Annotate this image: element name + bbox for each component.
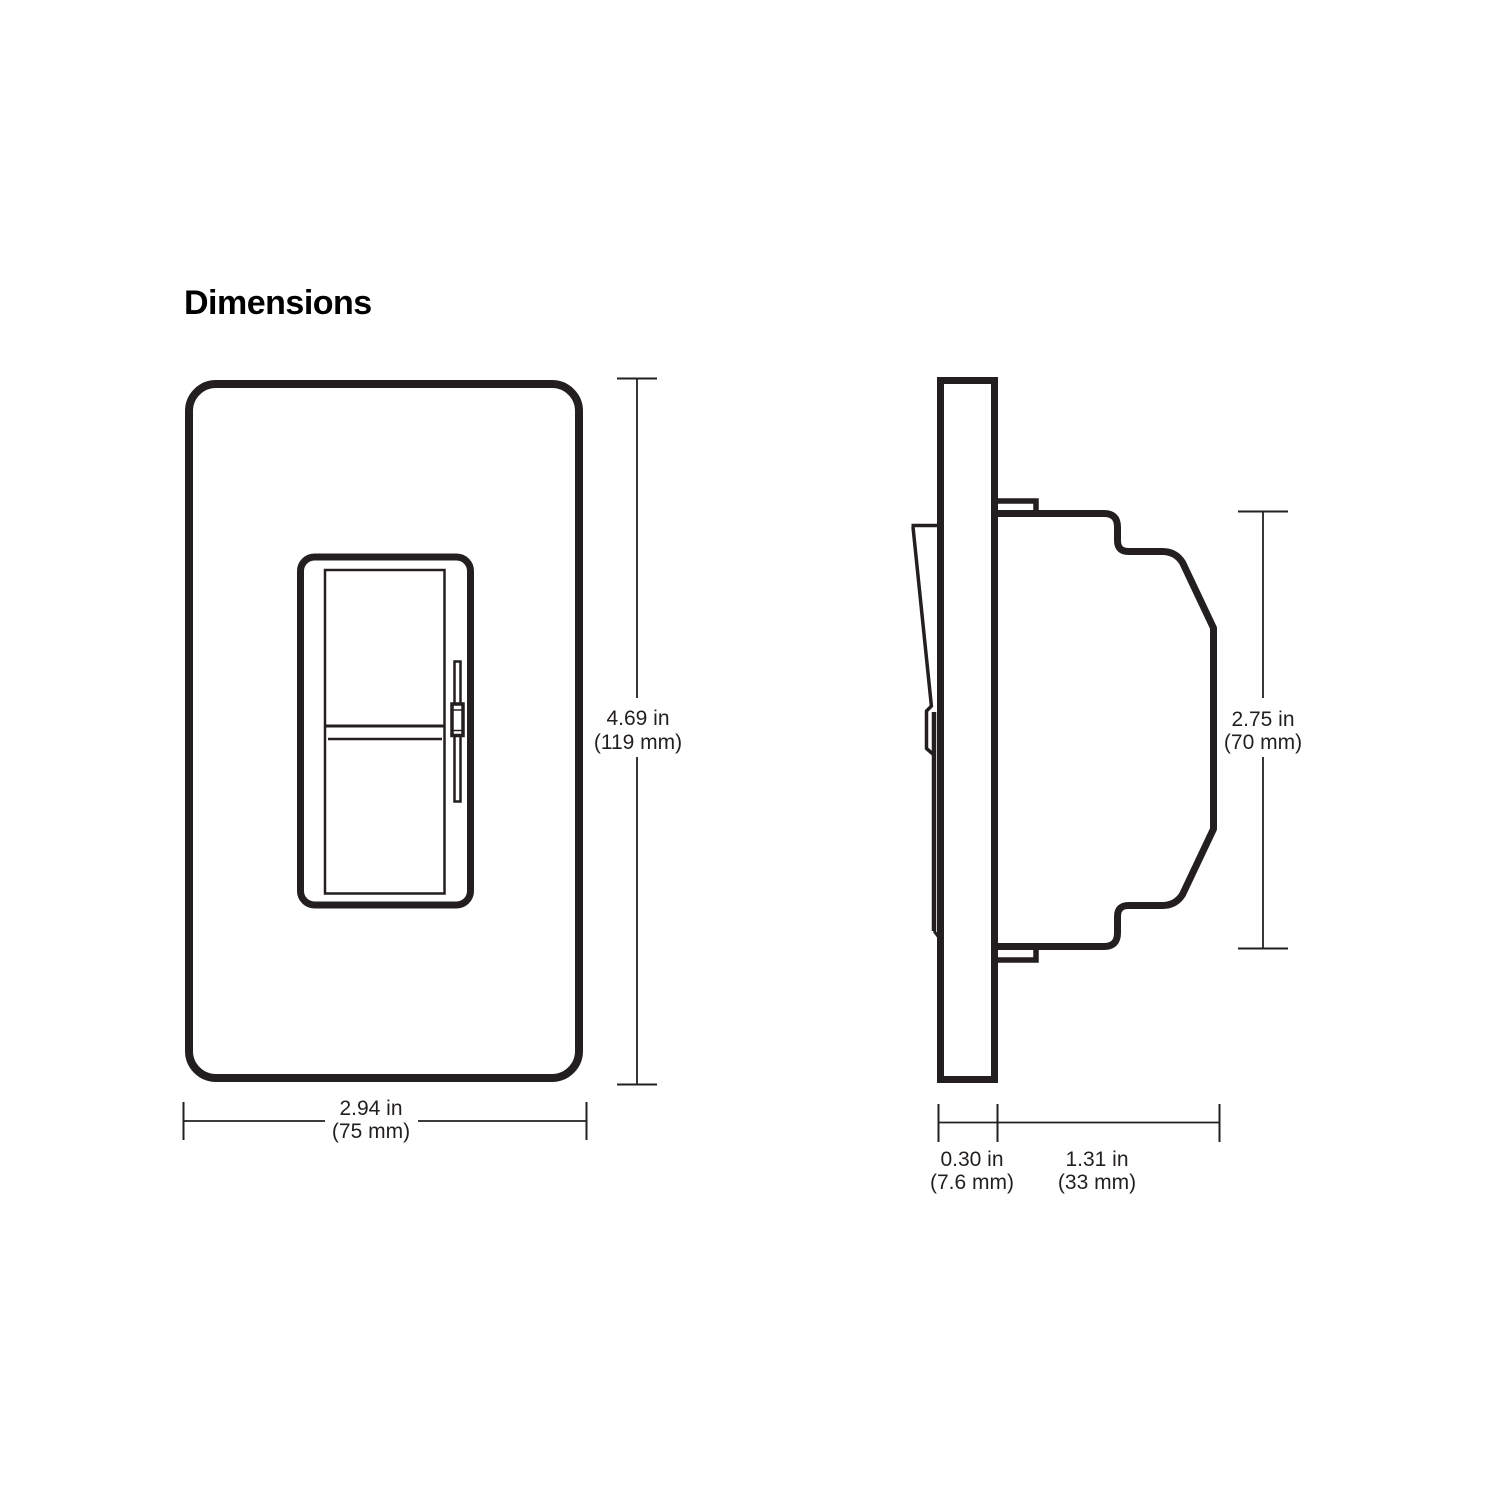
side-body-outline bbox=[994, 514, 1214, 947]
body-depth-label-metric: (33 mm) bbox=[1058, 1171, 1136, 1194]
dimmer-side-view bbox=[912, 381, 1214, 1080]
side-height-dimension: 2.75 in (70 mm) bbox=[1224, 512, 1302, 949]
dimmer-front-view bbox=[189, 384, 579, 1078]
side-wallplate-outline bbox=[941, 381, 995, 1080]
side-height-label-inches: 2.75 in bbox=[1231, 708, 1294, 731]
front-width-dimension: 2.94 in (75 mm) bbox=[184, 1097, 587, 1143]
front-width-label-metric: (75 mm) bbox=[332, 1120, 410, 1143]
front-dimmer-paddle bbox=[325, 570, 445, 894]
front-width-label-inches: 2.94 in bbox=[339, 1097, 402, 1120]
dimension-diagram: 4.69 in (119 mm) 2.94 in (75 mm) bbox=[0, 0, 1500, 1500]
wallplate-depth-label-metric: (7.6 mm) bbox=[930, 1171, 1014, 1194]
body-depth-label-inches: 1.31 in bbox=[1065, 1148, 1128, 1171]
front-height-dimension: 4.69 in (119 mm) bbox=[594, 379, 682, 1085]
wallplate-depth-label-inches: 0.30 in bbox=[940, 1148, 1003, 1171]
side-height-label-metric: (70 mm) bbox=[1224, 731, 1302, 754]
front-height-label-inches: 4.69 in bbox=[606, 707, 669, 730]
side-paddle-slant bbox=[913, 527, 932, 707]
front-height-label-metric: (119 mm) bbox=[594, 731, 682, 754]
side-depth-dimension: 0.30 in (7.6 mm) 1.31 in (33 mm) bbox=[930, 1104, 1220, 1194]
dimensions-diagram-page: Dimensions 4.69 in (119 bbox=[0, 0, 1500, 1500]
